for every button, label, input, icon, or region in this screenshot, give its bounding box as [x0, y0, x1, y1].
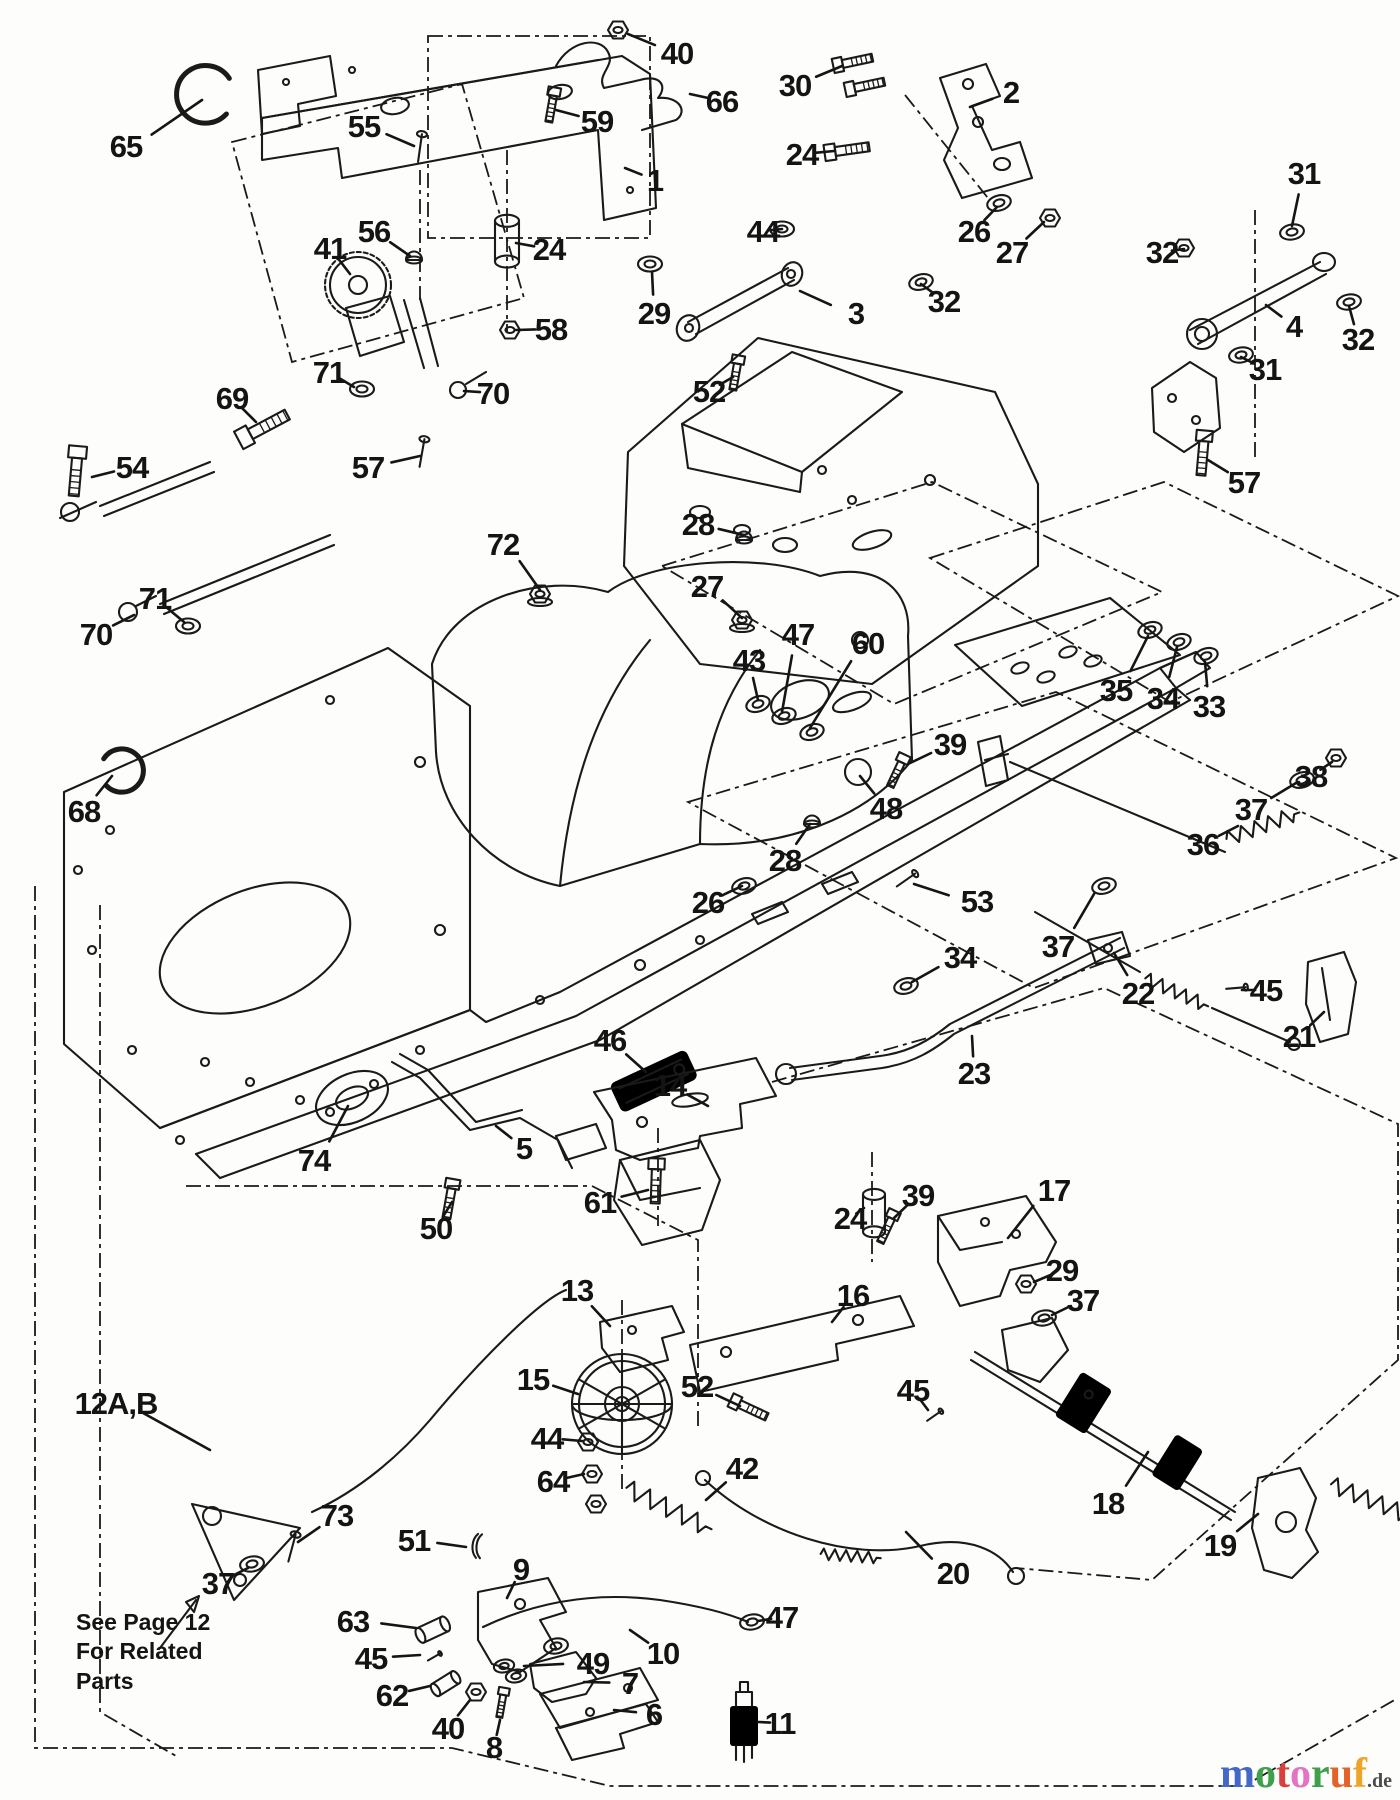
watermark-letters: motoruf [1220, 1751, 1367, 1797]
leader-line [626, 1054, 646, 1072]
leader-line [1074, 894, 1094, 928]
part-callout-26: 26 [958, 214, 991, 249]
leader-line [381, 1623, 416, 1628]
part-callout-4: 4 [1286, 309, 1304, 344]
leader-line [625, 168, 642, 175]
part-callout-41: 41 [314, 231, 347, 266]
part-callout-43: 43 [733, 643, 766, 678]
leader-line [1292, 194, 1299, 226]
watermark-tld: .de [1367, 1770, 1392, 1792]
part-callout-47: 47 [766, 1600, 798, 1635]
part-callout-71: 71 [139, 581, 172, 616]
part-callout-73: 73 [321, 1498, 354, 1533]
part-callout-20: 20 [937, 1556, 969, 1591]
part-callout-10: 10 [647, 1636, 679, 1671]
part-callout-71: 71 [313, 355, 346, 390]
part-callout-68: 68 [68, 794, 101, 829]
leader-line [1219, 826, 1238, 836]
part-callout-40: 40 [661, 36, 693, 71]
part-callout-1: 1 [647, 163, 664, 198]
part-callout-39: 39 [902, 1178, 935, 1213]
leader-line [1266, 305, 1281, 317]
part-callout-70: 70 [80, 617, 112, 652]
part-callout-70: 70 [477, 376, 509, 411]
part-callout-69: 69 [216, 381, 249, 416]
parts-diagram-page: 6555594066130224262744313233243231525724… [0, 0, 1400, 1800]
callout-labels: 6555594066130224262744313233243231525724… [68, 36, 1374, 1765]
leader-line [393, 1655, 420, 1657]
part-callout-7: 7 [622, 1666, 638, 1701]
leader-line [1271, 783, 1296, 798]
exploded-parts-diagram: 6555594066130224262744313233243231525724… [0, 0, 1400, 1800]
part-callout-32: 32 [928, 284, 960, 319]
part-callout-8: 8 [486, 1730, 503, 1765]
part-callout-35: 35 [1100, 673, 1133, 708]
part-callout-63: 63 [337, 1604, 370, 1639]
leader-line [409, 1686, 430, 1691]
part-callout-65: 65 [110, 129, 143, 164]
leader-line [810, 661, 851, 728]
leader-line [387, 134, 415, 146]
part-callout-23: 23 [958, 1056, 991, 1091]
part-callout-47: 47 [782, 617, 814, 652]
part-callout-19: 19 [1204, 1528, 1237, 1563]
part-callout-52: 52 [693, 374, 725, 409]
leader-line [437, 1543, 466, 1547]
part-callout-72: 72 [487, 527, 519, 562]
leader-line [1237, 1514, 1258, 1531]
note-line: Parts [76, 1667, 266, 1696]
watermark-letter: r [1311, 1751, 1330, 1797]
part-callout-48: 48 [870, 791, 903, 826]
watermark-letter: t [1276, 1751, 1290, 1797]
part-callout-45: 45 [897, 1373, 930, 1408]
leader-line [584, 1682, 609, 1683]
part-callout-74: 74 [298, 1143, 332, 1178]
part-callout-57: 57 [352, 450, 384, 485]
part-callout-33: 33 [1193, 689, 1226, 724]
part-callout-31: 31 [1288, 156, 1321, 191]
part-callout-30: 30 [779, 68, 811, 103]
leader-line [520, 561, 540, 590]
part-callout-16: 16 [837, 1278, 870, 1313]
part-callout-34: 34 [944, 940, 978, 975]
part-callout-52: 52 [681, 1369, 713, 1404]
part-callout-49: 49 [577, 1646, 610, 1681]
part-callout-17: 17 [1038, 1173, 1070, 1208]
watermark-letter: u [1330, 1751, 1353, 1797]
part-callout-39: 39 [934, 727, 967, 762]
part-callout-66: 66 [706, 84, 739, 119]
part-callout-51: 51 [398, 1523, 431, 1558]
leader-line [1026, 222, 1044, 239]
part-callout-22: 22 [1122, 976, 1154, 1011]
part-callout-46: 46 [594, 1023, 627, 1058]
part-callout-58: 58 [535, 312, 568, 347]
related-parts-note: See Page 12 For Related Parts [76, 1608, 266, 1696]
leader-line [567, 1474, 584, 1478]
leader-line [516, 329, 535, 330]
part-callout-53: 53 [961, 884, 994, 919]
part-callout-45: 45 [355, 1641, 388, 1676]
part-callout-36: 36 [1187, 827, 1220, 862]
leader-line [914, 884, 949, 895]
watermark-letter: o [1255, 1751, 1276, 1797]
part-callout-34: 34 [1147, 681, 1181, 716]
part-callout-44: 44 [747, 214, 781, 249]
part-callout-15: 15 [517, 1362, 550, 1397]
part-callout-50: 50 [420, 1211, 452, 1246]
part-callout-5: 5 [516, 1131, 533, 1166]
part-callout-32: 32 [1342, 322, 1374, 357]
part-callout-45: 45 [1250, 973, 1283, 1008]
part-callout-42: 42 [726, 1451, 758, 1486]
part-callout-27: 27 [691, 569, 723, 604]
part-callout-18: 18 [1092, 1486, 1125, 1521]
leader-line [816, 151, 834, 153]
watermark-letter: f [1353, 1751, 1367, 1797]
leader-line [800, 291, 831, 305]
leader-line [92, 472, 114, 478]
part-callout-26: 26 [692, 885, 725, 920]
part-callout-32: 32 [1146, 235, 1178, 270]
leader-line [723, 600, 742, 618]
part-callout-28: 28 [682, 507, 715, 542]
note-line: For Related [76, 1637, 266, 1666]
part-callout-37: 37 [202, 1566, 234, 1601]
part-callout-55: 55 [348, 109, 381, 144]
part-callout-56: 56 [358, 214, 391, 249]
leader-line [390, 242, 410, 256]
part-callout-24: 24 [834, 1201, 868, 1236]
part-callout-62: 62 [376, 1678, 408, 1713]
leader-line [972, 1036, 973, 1056]
leader-line [970, 99, 993, 107]
part-callout-38: 38 [1295, 759, 1328, 794]
part-callout-28: 28 [769, 843, 802, 878]
part-callout-24: 24 [533, 232, 567, 267]
part-callout-37: 37 [1042, 929, 1074, 964]
part-callout-64: 64 [537, 1464, 571, 1499]
part-callout-37: 37 [1235, 792, 1267, 827]
part-callout-40: 40 [432, 1711, 464, 1746]
part-callout-37: 37 [1067, 1283, 1099, 1318]
part-callout-60: 60 [852, 626, 884, 661]
leader-line [563, 1439, 582, 1441]
note-line: See Page 12 [76, 1608, 266, 1637]
part-callout-3: 3 [848, 296, 865, 331]
watermark-letter: o [1290, 1751, 1311, 1797]
part-callout-2: 2 [1003, 75, 1019, 110]
leader-line [556, 110, 579, 116]
leader-line [496, 1126, 511, 1138]
part-callout-54: 54 [116, 450, 150, 485]
part-callout-59: 59 [581, 104, 614, 139]
part-callout-13: 13 [561, 1273, 594, 1308]
part-callout-21: 21 [1283, 1019, 1316, 1054]
part-callout-14: 14 [654, 1068, 688, 1103]
part-callout-9: 9 [513, 1552, 530, 1587]
part-callout-11: 11 [765, 1706, 797, 1741]
part-callout-31: 31 [1249, 352, 1282, 387]
part-callout-61: 61 [584, 1185, 617, 1220]
leader-line [630, 1630, 648, 1643]
part-callout-57: 57 [1228, 465, 1260, 500]
part-callout-6: 6 [646, 1697, 663, 1732]
part-callout-24: 24 [786, 137, 820, 172]
leader-line [912, 967, 938, 982]
leader-line [652, 272, 653, 295]
part-callout-12A,B: 12A,B [75, 1386, 158, 1421]
watermark-letter: m [1220, 1751, 1255, 1797]
motoruf-watermark[interactable]: motoruf.de [1220, 1750, 1392, 1798]
part-callout-29: 29 [638, 296, 671, 331]
leader-line [391, 456, 420, 462]
part-callout-44: 44 [531, 1421, 565, 1456]
part-callout-27: 27 [996, 235, 1028, 270]
leader-line [1208, 460, 1228, 472]
